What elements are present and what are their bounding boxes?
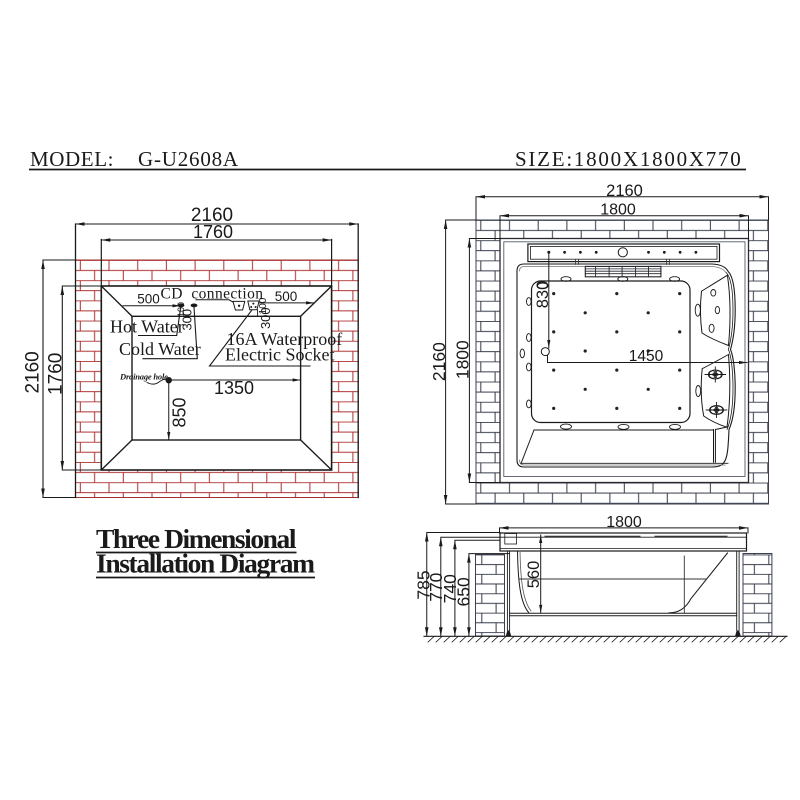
svg-text:Cold Water: Cold Water xyxy=(119,339,201,359)
svg-text:830: 830 xyxy=(534,281,552,309)
svg-text:650: 650 xyxy=(454,577,474,606)
svg-text:560: 560 xyxy=(525,561,543,589)
svg-text:850: 850 xyxy=(169,397,189,427)
svg-text:1350: 1350 xyxy=(214,378,254,398)
svg-text:G-U2608A: G-U2608A xyxy=(138,147,239,171)
svg-text:500: 500 xyxy=(137,292,160,307)
svg-text:2160: 2160 xyxy=(429,342,449,381)
svg-text:SIZE:1800X1800X770: SIZE:1800X1800X770 xyxy=(515,147,743,171)
svg-text:1800: 1800 xyxy=(453,340,473,379)
svg-text:Electric Socket: Electric Socket xyxy=(225,345,334,365)
svg-text:2160: 2160 xyxy=(23,351,44,393)
svg-text:500: 500 xyxy=(275,289,298,304)
svg-text:1760: 1760 xyxy=(193,222,233,242)
svg-text:300: 300 xyxy=(179,309,194,331)
svg-text:Hot Water: Hot Water xyxy=(110,317,184,337)
svg-text:1450: 1450 xyxy=(629,348,664,365)
svg-text:1800: 1800 xyxy=(600,202,636,219)
svg-text:Installation Diagram: Installation Diagram xyxy=(96,548,315,579)
svg-text:2160: 2160 xyxy=(606,182,643,200)
svg-text:300: 300 xyxy=(258,307,273,329)
svg-text:1760: 1760 xyxy=(46,353,67,395)
svg-text:1800: 1800 xyxy=(606,514,642,531)
svg-text:MODEL:: MODEL: xyxy=(30,147,114,171)
